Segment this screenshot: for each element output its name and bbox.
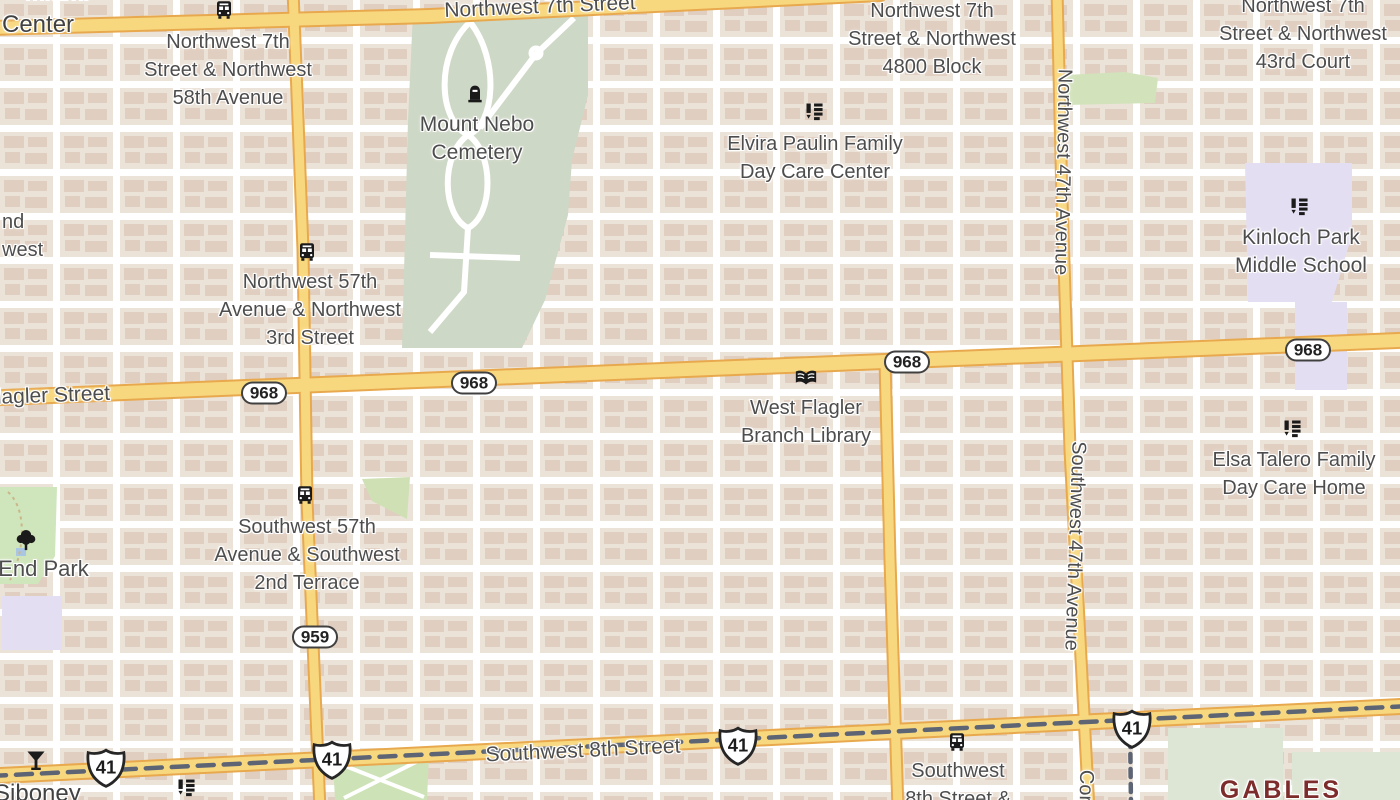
label-line: 43rd Court — [1219, 48, 1387, 76]
label-line: Street & Northwest — [144, 56, 312, 84]
label-line: Branch Library — [741, 422, 871, 450]
label-line: 58th Avenue — [144, 84, 312, 112]
label-line: Mount Nebo — [420, 111, 534, 139]
label-line: Southwest 57th — [214, 513, 399, 541]
city-label-miami: Miami — [25, 0, 89, 7]
label-line: Northwest 7th — [848, 0, 1016, 25]
route-shield-959: 959 — [292, 626, 338, 649]
poi-label-nw7-4800-block: Northwest 7th Street & Northwest 4800 Bl… — [848, 0, 1016, 81]
street-label-northwest-47th-avenue: Northwest 47th Avenue — [1047, 69, 1079, 276]
route-shield-968: 968 — [1285, 339, 1331, 362]
poi-label-center-partial: l Center — [0, 11, 74, 39]
svg-text:41: 41 — [1122, 717, 1142, 738]
label-line: Day Care Home — [1212, 474, 1375, 502]
us-route-41-shield: 41 — [310, 740, 354, 781]
poi-label-nd-partial: nd — [2, 208, 24, 236]
poi-label-kinloch-park-middle-school: Kinloch Park Middle School — [1235, 224, 1367, 280]
poi-label-west-flagler-branch-library: West Flagler Branch Library — [741, 394, 871, 450]
svg-text:41: 41 — [322, 748, 342, 769]
street-label-flagler-street: Flagler Street — [0, 380, 111, 412]
label-line: Elsa Talero Family — [1212, 446, 1375, 474]
city-label-siboney: Siboney — [0, 780, 81, 800]
label-line: Middle School — [1235, 252, 1367, 280]
poi-label-elsa-talero-day-care: Elsa Talero Family Day Care Home — [1212, 446, 1375, 502]
label-line: Kinloch Park — [1235, 224, 1367, 252]
poi-label-west-partial: west — [2, 236, 43, 264]
poi-label-nw7-58th: Northwest 7th Street & Northwest 58th Av… — [144, 28, 312, 112]
cemetery-icon — [465, 84, 485, 104]
svg-text:41: 41 — [96, 756, 116, 777]
label-line: 2nd Terrace — [214, 569, 399, 597]
label-line: Northwest 7th — [1219, 0, 1387, 20]
label-line: Street & Northwest — [1219, 20, 1387, 48]
label-line: Cemetery — [420, 139, 534, 167]
svg-text:41: 41 — [728, 734, 748, 755]
route-shield-968: 968 — [241, 382, 287, 405]
school-icon — [178, 780, 197, 797]
bus-stop-icon — [214, 0, 235, 21]
street-label-cor-partial: Cor — [1072, 770, 1101, 800]
poi-label-nw7-43rd-court: Northwest 7th Street & Northwest 43rd Co… — [1219, 0, 1387, 76]
school-icon — [806, 104, 825, 121]
us-route-41-shield: 41 — [84, 748, 128, 789]
label-line: Day Care Center — [727, 158, 903, 186]
label-line: 8th Street & — [905, 785, 1011, 800]
poi-label-elvira-paulin-day-care: Elvira Paulin Family Day Care Center — [727, 130, 903, 186]
poi-label-west-end-park: t End Park — [0, 555, 89, 583]
school-icon — [1291, 199, 1310, 216]
poi-label-mount-nebo-cemetery: Mount Nebo Cemetery — [420, 111, 534, 167]
label-line: Northwest 57th — [219, 268, 401, 296]
label-line: 3rd Street — [219, 324, 401, 352]
label-line: Street & Northwest — [848, 25, 1016, 53]
map-viewport[interactable]: 968 968 968 968 959 41 41 41 41 Miami l … — [0, 0, 1400, 800]
city-blocks-texture — [0, 0, 1400, 800]
school-icon — [1284, 421, 1303, 438]
library-book-icon — [794, 369, 818, 388]
poi-label-sw8-stop: Southwest 8th Street & — [905, 757, 1011, 800]
bus-stop-icon — [295, 485, 316, 506]
bus-stop-icon — [297, 242, 318, 263]
us-route-41-shield: 41 — [716, 726, 760, 767]
cocktail-icon — [27, 751, 46, 772]
label-line: Avenue & Southwest — [214, 541, 399, 569]
map-canvas — [0, 0, 1400, 800]
us-route-41-shield: 41 — [1110, 709, 1154, 750]
label-line: Northwest 7th — [144, 28, 312, 56]
poi-label-sw57-2nd-terrace: Southwest 57th Avenue & Southwest 2nd Te… — [214, 513, 399, 597]
label-line: Southwest — [905, 757, 1011, 785]
city-label-gables: GABLES — [1220, 776, 1342, 800]
tree-icon — [15, 529, 38, 554]
label-line: Elvira Paulin Family — [727, 130, 903, 158]
bus-stop-icon — [947, 732, 968, 753]
route-shield-968: 968 — [451, 372, 497, 395]
route-shield-968: 968 — [884, 351, 930, 374]
label-line: 4800 Block — [848, 53, 1016, 81]
poi-label-nw57-3rd-street: Northwest 57th Avenue & Northwest 3rd St… — [219, 268, 401, 352]
label-line: West Flagler — [741, 394, 871, 422]
label-line: Avenue & Northwest — [219, 296, 401, 324]
